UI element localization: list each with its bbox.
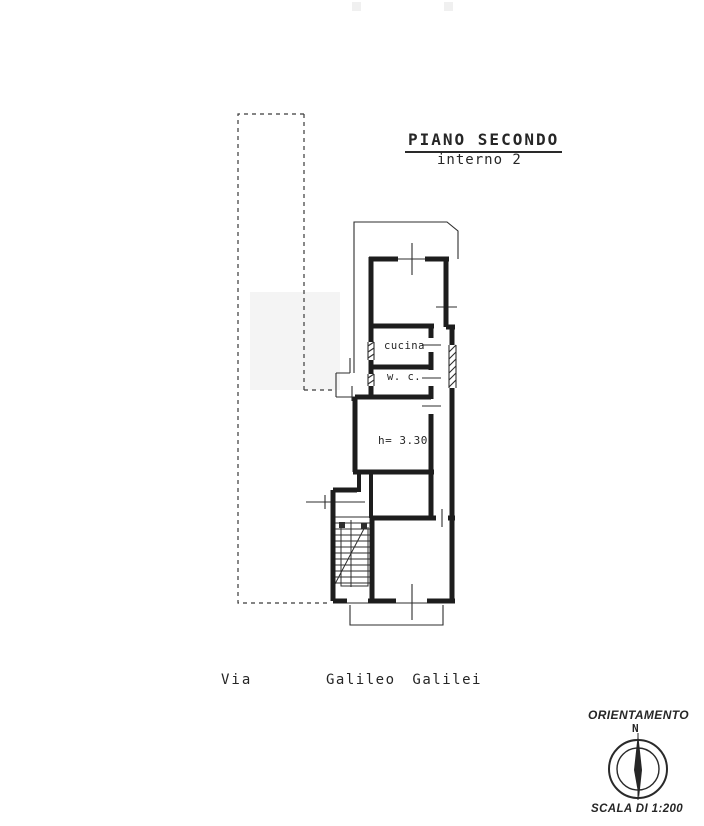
bottom-balcony-outline — [350, 605, 443, 625]
street-name-label: Galileo Galilei — [326, 672, 482, 688]
room-label-ceiling-height: h= 3.30 — [378, 434, 428, 447]
scale-note: SCALA DI 1:200 — [591, 803, 683, 815]
staircase — [332, 520, 371, 587]
thin-line-work — [306, 222, 458, 625]
compass-needle-icon — [634, 733, 642, 798]
room-label-kitchen: cucina — [384, 340, 425, 352]
page-subtitle: interno 2 — [437, 152, 522, 168]
drawing-sheet: PIANO SECONDO interno 2 cucina w. c. h= … — [0, 0, 704, 826]
floor-plan-drawing — [0, 0, 704, 826]
scanned-floor-plan-page: { "header": { "title": "PIANO SECONDO", … — [0, 0, 704, 826]
orientation-title: ORIENTAMENTO — [588, 708, 689, 722]
scan-artifacts — [250, 2, 453, 390]
north-label: N — [632, 722, 639, 735]
street-prefix-label: Via — [221, 672, 252, 688]
orientation-compass — [609, 733, 667, 800]
page-title: PIANO SECONDO — [405, 130, 562, 153]
room-label-wc: w. c. — [387, 371, 421, 383]
